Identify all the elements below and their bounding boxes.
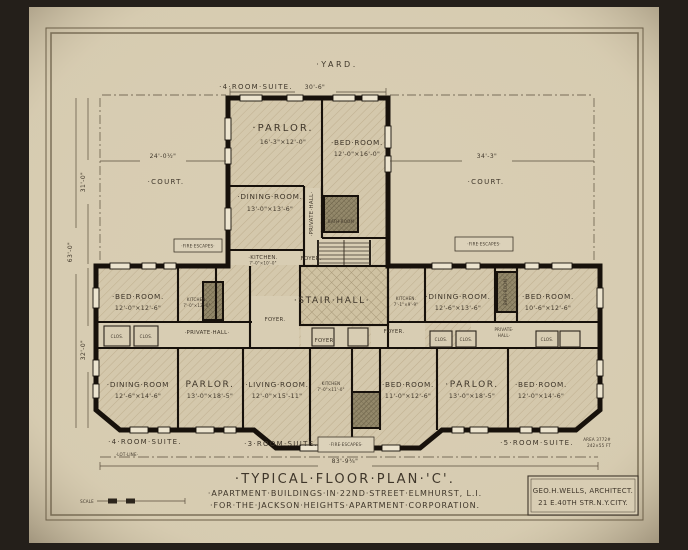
- area-note-line1: AREA 3772#: [583, 437, 611, 442]
- dim-left-total: 63'-0": [67, 242, 74, 262]
- room-label-private-hall-right-2: HALL·: [498, 333, 510, 338]
- dim-left-upper: 31'-0": [80, 172, 87, 192]
- room-label-private-hall-left: ·PRIVATE·HALL·: [185, 330, 230, 336]
- title-block: ·TYPICAL·FLOOR·PLAN·'C'. ·APARTMENT·BUIL…: [208, 472, 482, 510]
- room-label-stair-hall: ·STAIR·HALL·: [294, 296, 370, 306]
- closet-label-3: CLOS.: [435, 337, 448, 342]
- room-label-parlor-top: ·PARLOR.: [252, 123, 313, 134]
- drawing-subtitle-2: ·FOR·THE·JACKSON·HEIGHTS·APARTMENT·CORPO…: [210, 501, 480, 510]
- room-label-bedroom-top: ·BED·ROOM.: [331, 138, 383, 147]
- bathroom-top-wing: [324, 196, 358, 232]
- room-size-dining-bottom-left: 12'-6"×14'-6": [115, 393, 161, 400]
- suite-label-bottom-right: ·5·ROOM·SUITE.: [500, 439, 574, 447]
- room-size-parlor-bottom-right: 13'-0"×18'-5": [449, 393, 495, 400]
- room-label-bedroom-mid-left: ·BED·ROOM.: [112, 292, 164, 301]
- room-label-foyer-lower-left: FOYER.: [315, 338, 336, 344]
- closet-label-2: CLOS.: [140, 334, 153, 339]
- room-size-kitchen-bottom: 7'-0"×11'-0": [317, 387, 344, 392]
- lot-line-label: ·LOT·LINE·: [116, 452, 138, 457]
- fire-escapes-label-right: ·FIRE·ESCAPES·: [467, 242, 500, 247]
- room-size-bedroom-mid-right: 10'-6"×12'-6": [525, 305, 571, 312]
- dim-frontage: 83'-9¾": [332, 458, 359, 465]
- dim-wing-width: 30'-6": [305, 84, 325, 91]
- room-size-bedroom-mid-left: 12'-0"×12'-6": [115, 305, 161, 312]
- room-size-dining-mid-right: 12'-6"×13'-6": [435, 305, 481, 312]
- room-label-bath-right: BATH·ROOM: [503, 279, 508, 306]
- drawing-subtitle-1: ·APARTMENT·BUILDINGS·IN·22ND·STREET·ELMH…: [208, 489, 482, 498]
- architect-block: GEO.H.WELLS, ARCHITECT. 21 E.40TH STR.N.…: [528, 476, 638, 515]
- fire-escapes-label-left: ·FIRE·ESCAPES·: [181, 244, 214, 249]
- room-label-bath-top: BATH·ROOM: [328, 219, 355, 224]
- scale-label: SCALE: [80, 499, 94, 504]
- room-label-parlor-bottom-left: PARLOR.: [185, 380, 234, 390]
- floor-plan-drawing: ·FIRE·ESCAPES· ·FIRE·ESCAPES· ·FIRE·ESCA…: [0, 0, 688, 550]
- room-label-kitchen-mid-left: KITCHEN.: [187, 297, 207, 302]
- room-label-private-hall-right-1: PRIVATE·: [494, 327, 513, 332]
- room-size-kitchen-upper: 7'-0"×10'-0": [249, 261, 276, 266]
- room-size-bedroom-top: 12'-0"×16'-0": [334, 151, 380, 158]
- photograph-of-floor-plan: ·FIRE·ESCAPES· ·FIRE·ESCAPES· ·FIRE·ESCA…: [0, 0, 688, 550]
- room-label-foyer-mid-right: FOYER.: [384, 329, 405, 335]
- room-label-dining-mid-right: ·DINING·ROOM.: [425, 292, 490, 301]
- room-label-dining-bottom-left: ·DINING·ROOM: [107, 380, 169, 389]
- room-size-bedroom-bottom-center: 11'-0"×12'-6": [385, 393, 431, 400]
- bathroom-bottom-center: [352, 392, 380, 428]
- room-label-bedroom-bottom-center: ·BED·ROOM.: [382, 380, 434, 389]
- room-size-parlor-bottom-left: 13'-0"×18'-5": [187, 393, 233, 400]
- room-label-kitchen-bottom: KITCHEN: [322, 381, 341, 386]
- room-size-living-bottom: 12'-0"×15'-11": [252, 393, 303, 400]
- suite-label-bottom-left: ·4·ROOM·SUITE.: [108, 438, 182, 446]
- area-note-line2: 242×55 FT: [587, 443, 611, 448]
- room-size-dining-top: 13'-0"×13'-6": [247, 206, 293, 213]
- room-size-kitchen-mid-right: 7'-1"×9'-9": [394, 302, 419, 307]
- drawing-title: ·TYPICAL·FLOOR·PLAN·'C'.: [235, 472, 455, 487]
- closet-label-5: CLOS.: [541, 337, 554, 342]
- room-size-parlor-top: 16'-3"×12'-0": [260, 139, 306, 146]
- room-label-dining-top: ·DINING·ROOM.: [237, 192, 302, 201]
- room-label-kitchen-mid-right: KITCHEN.: [396, 296, 416, 301]
- court-left-label: ·COURT.: [148, 178, 185, 186]
- closet-label-1: CLOS.: [111, 334, 124, 339]
- room-label-bedroom-bottom-right: ·BED·ROOM.: [515, 380, 567, 389]
- fire-escapes-label-bottom: ·FIRE·ESCAPES·: [329, 442, 362, 447]
- suite-label-bottom-center: ·3·ROOM·SUITE.: [244, 440, 318, 448]
- architect-name: GEO.H.WELLS, ARCHITECT.: [533, 487, 633, 495]
- room-size-bedroom-bottom-right: 12'-0"×14'-6": [518, 393, 564, 400]
- room-label-private-hall-top: ·PRIVATE·HALL·: [309, 192, 315, 237]
- room-size-kitchen-mid-left: 7'-0"×12'-0": [183, 303, 210, 308]
- room-label-parlor-bottom-right: ·PARLOR.: [445, 380, 499, 390]
- court-right-label: ·COURT.: [468, 178, 505, 186]
- room-label-bedroom-mid-right: ·BED·ROOM.: [522, 292, 574, 301]
- room-label-foyer-upper: FOYER.: [301, 256, 322, 262]
- closet-label-4: CLOS.: [460, 337, 473, 342]
- room-label-living-bottom: ·LIVING·ROOM.: [245, 380, 308, 389]
- room-label-foyer-mid-left: FOYER.: [265, 317, 286, 323]
- dim-left-lower: 32'-0": [80, 340, 87, 360]
- yard-label: ·YARD.: [316, 60, 358, 69]
- architect-address: 21 E.40TH STR.N.Y.CITY.: [538, 499, 628, 507]
- dim-court-right: 34'-3": [477, 153, 497, 160]
- dim-court-left: 24'-0½": [150, 153, 177, 160]
